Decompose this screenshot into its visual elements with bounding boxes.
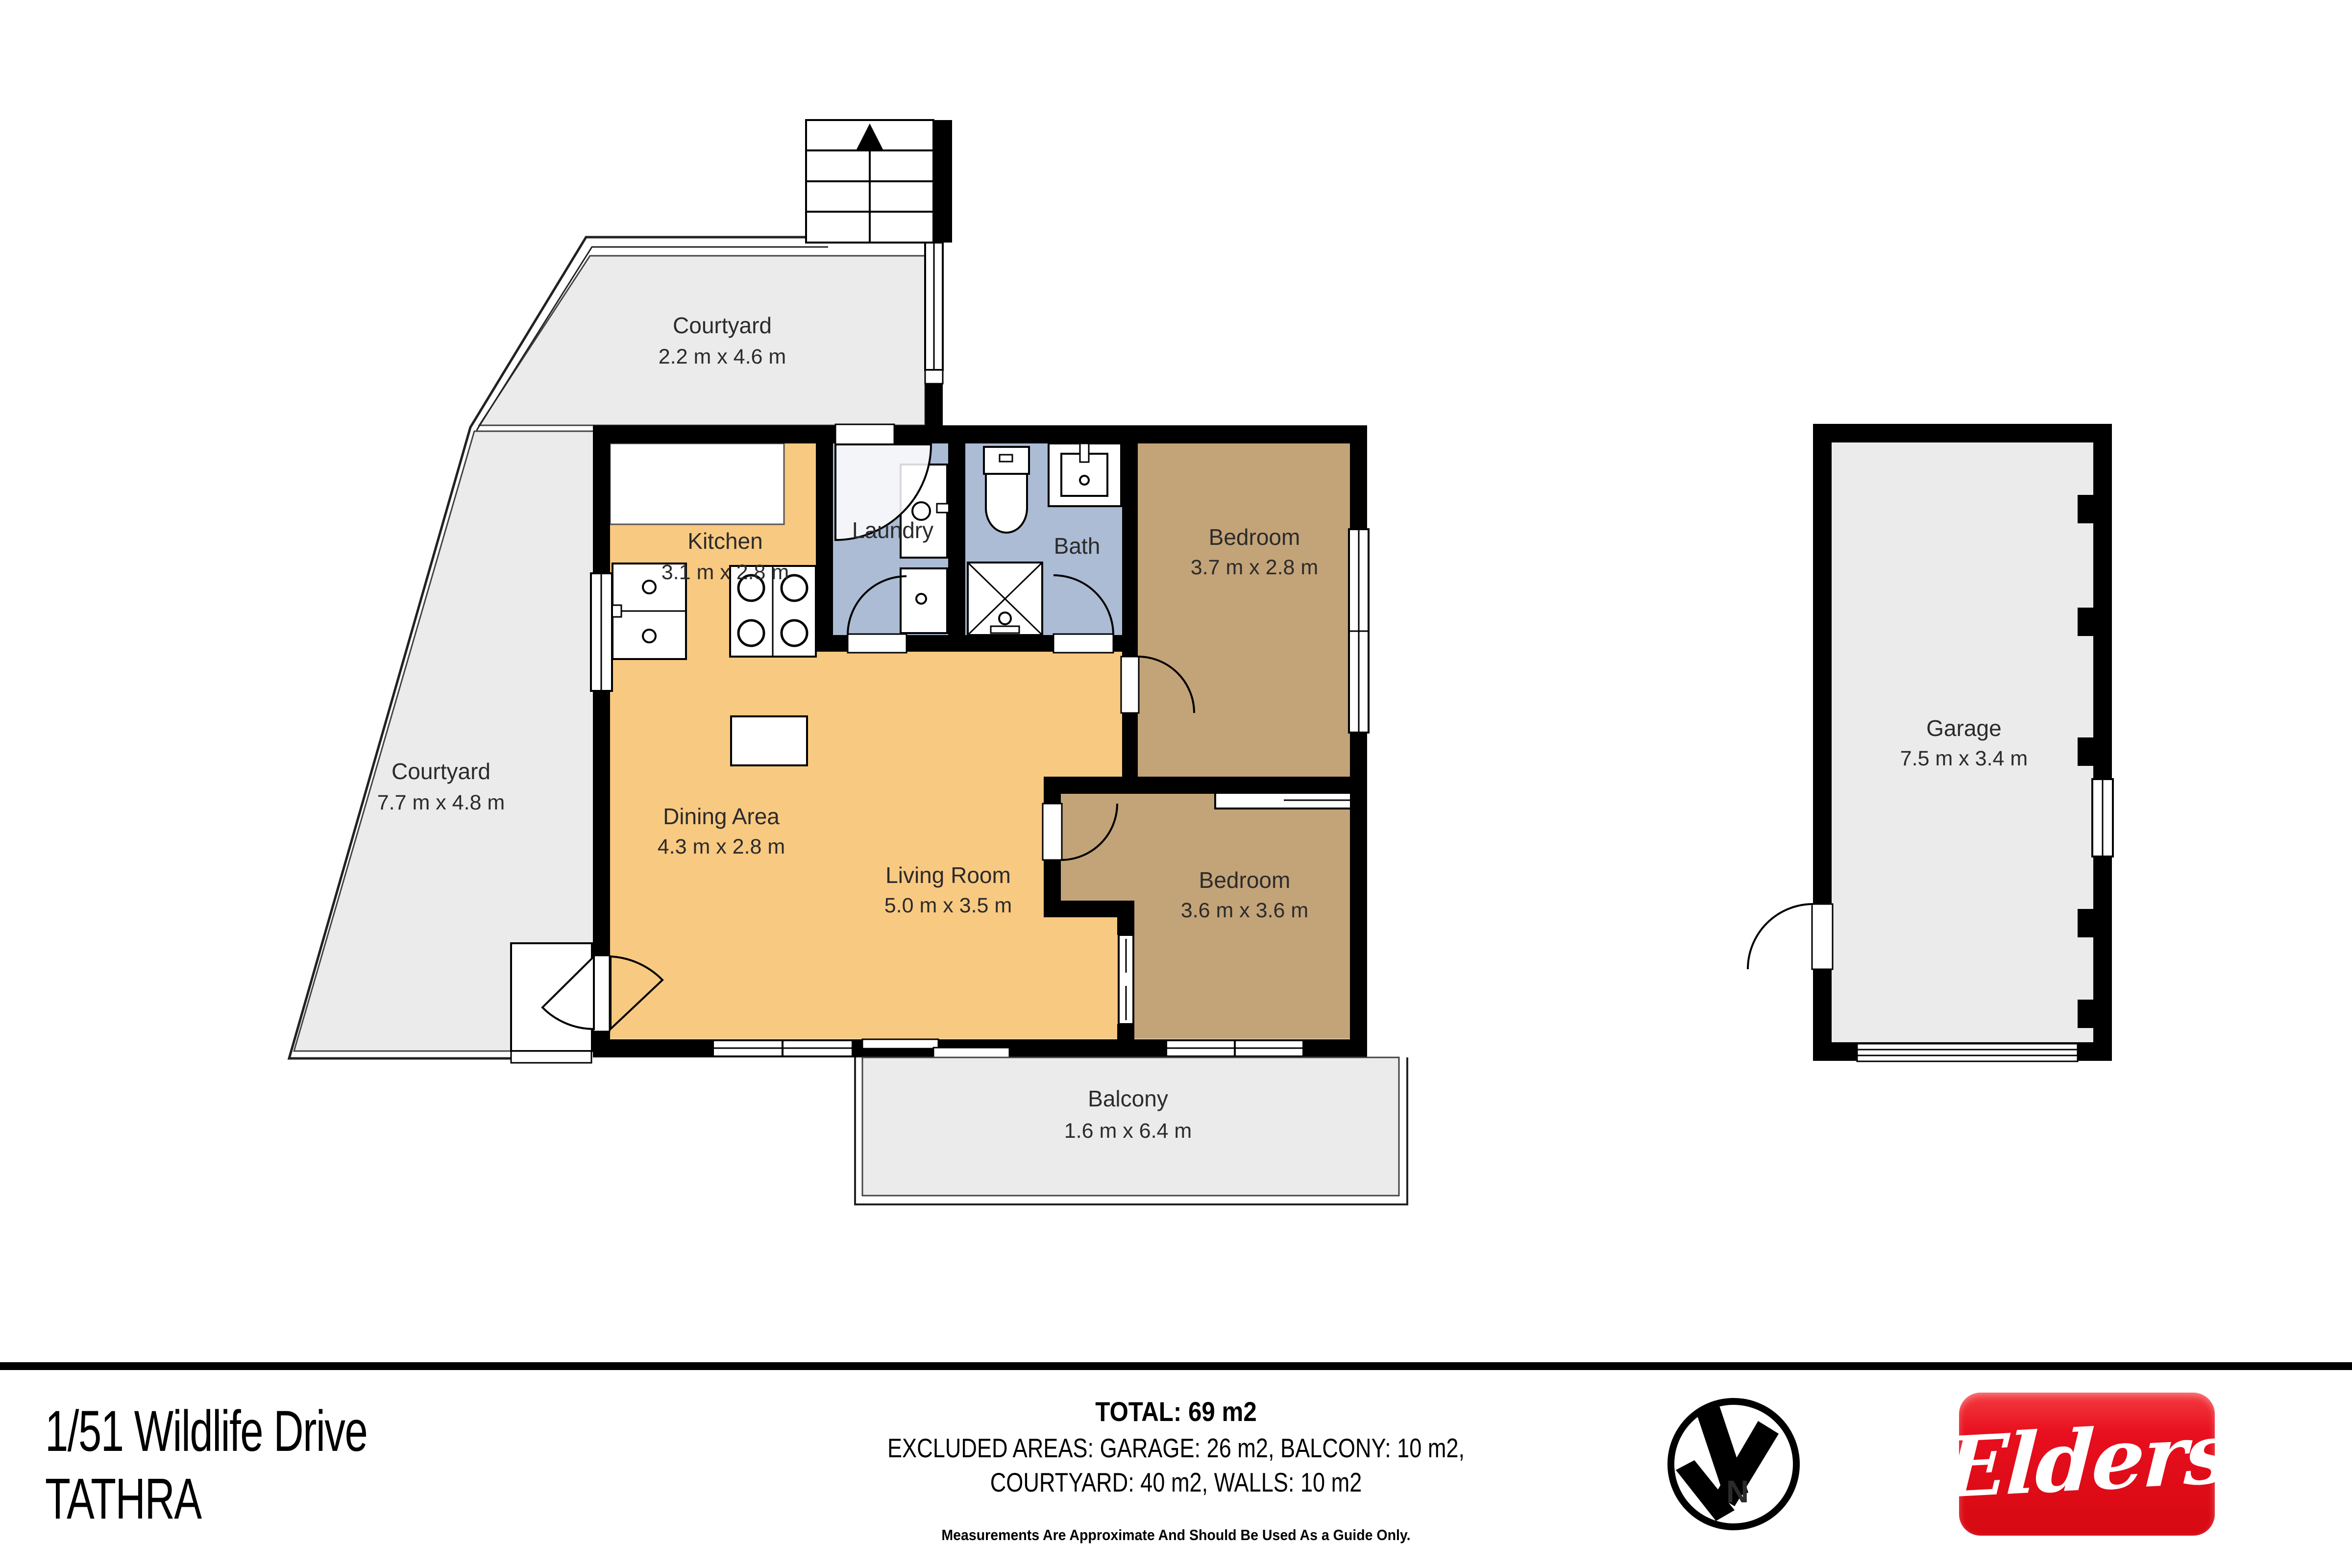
area-summary: TOTAL: 69 m2 EXCLUDED AREAS: GARAGE: 26 … xyxy=(764,1396,1588,1544)
property-address: 1/51 Wildlife Drive TATHRA xyxy=(45,1397,492,1533)
dims-bedroom1: 3.7 m x 2.8 m xyxy=(1191,556,1318,579)
dims-courtyard-left: 7.7 m x 4.8 m xyxy=(377,791,505,814)
garage-roller-door xyxy=(1857,1044,2078,1061)
dims-courtyard-top: 2.2 m x 4.6 m xyxy=(659,345,786,368)
floor-bedroom1 xyxy=(1138,443,1350,777)
kitchen-bench xyxy=(731,716,807,765)
label-laundry: Laundry xyxy=(852,517,933,543)
address-line2: TATHRA xyxy=(45,1465,367,1533)
brand-name: Elders xyxy=(1942,1404,2232,1524)
living-bedroom2-sliding-door xyxy=(1119,935,1133,1024)
dims-bedroom2: 3.6 m x 3.6 m xyxy=(1181,899,1308,922)
label-living: Living Room xyxy=(885,862,1011,888)
floorplan-page: Courtyard 2.2 m x 4.6 m Courtyard 7.7 m … xyxy=(0,0,2352,1568)
label-bedroom2: Bedroom xyxy=(1199,867,1291,893)
dims-kitchen: 3.1 m x 2.8 m xyxy=(661,561,789,584)
kitchen-counter xyxy=(610,443,784,524)
room-balcony: Balcony 1.6 m x 6.4 m xyxy=(855,1057,1407,1204)
label-courtyard-top: Courtyard xyxy=(673,313,772,338)
dims-living: 5.0 m x 3.5 m xyxy=(884,894,1012,917)
address-line1: 1/51 Wildlife Drive xyxy=(45,1397,367,1465)
garage-window xyxy=(2092,779,2113,857)
label-balcony: Balcony xyxy=(1088,1086,1168,1111)
dims-balcony: 1.6 m x 6.4 m xyxy=(1064,1119,1192,1143)
bedroom2-window xyxy=(1166,1040,1303,1056)
kitchen-window xyxy=(591,573,612,691)
dims-garage: 7.5 m x 3.4 m xyxy=(1900,747,2028,770)
dims-dining: 4.3 m x 2.8 m xyxy=(658,835,785,858)
excluded-areas-line2: COURTYARD: 40 m2, WALLS: 10 m2 xyxy=(838,1467,1514,1498)
courtyard-window xyxy=(925,243,943,428)
footer-divider xyxy=(0,1362,2352,1370)
bedroom1-window xyxy=(1349,529,1369,733)
living-window xyxy=(713,1040,853,1056)
shower-icon xyxy=(968,563,1042,635)
bath-vanity-icon xyxy=(1049,443,1121,506)
room-garage: Garage 7.5 m x 3.4 m xyxy=(1748,424,2113,1061)
floorplan-drawing: Courtyard 2.2 m x 4.6 m Courtyard 7.7 m … xyxy=(0,0,2352,1362)
toilet-icon xyxy=(984,447,1029,533)
laundry-trough-icon xyxy=(901,568,947,633)
excluded-areas-line1: EXCLUDED AREAS: GARAGE: 26 m2, BALCONY: … xyxy=(838,1432,1514,1464)
compass-n-label: N xyxy=(1726,1474,1749,1509)
garage-door-side xyxy=(1748,904,1833,969)
total-area: TOTAL: 69 m2 xyxy=(814,1396,1538,1427)
stairs-icon xyxy=(806,120,952,243)
label-bedroom1: Bedroom xyxy=(1209,524,1300,550)
label-bath: Bath xyxy=(1054,533,1101,559)
elders-logo: Elders xyxy=(1959,1393,2215,1536)
label-kitchen: Kitchen xyxy=(687,528,762,554)
north-arrow-icon: N xyxy=(1660,1391,1807,1538)
label-dining: Dining Area xyxy=(663,804,780,829)
label-courtyard-left: Courtyard xyxy=(392,759,490,784)
disclaimer: Measurements Are Approximate And Should … xyxy=(797,1526,1555,1544)
label-garage: Garage xyxy=(1926,715,2001,741)
